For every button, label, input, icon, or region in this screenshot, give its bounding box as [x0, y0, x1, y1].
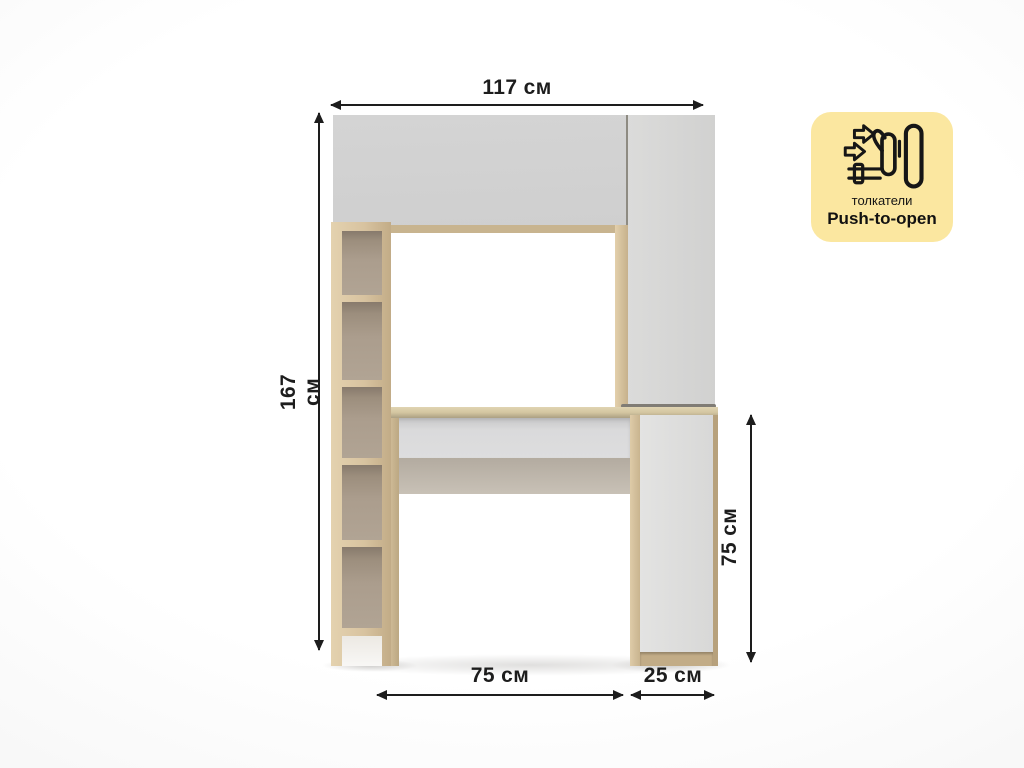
shelf-cell — [342, 547, 382, 628]
badge-label-ru: толкатели — [852, 194, 913, 208]
cabinet-underside-wood — [391, 225, 615, 233]
dimension-arrow-pedestal-width — [631, 694, 714, 696]
overhead-cabinet-door — [333, 115, 626, 225]
shelf-cell — [342, 231, 382, 295]
dimension-label-top-width: 117 см — [457, 76, 577, 100]
dimension-label-pedestal-width: 25 см — [613, 664, 733, 688]
desk-drawer-front — [389, 418, 630, 458]
right-wardrobe-front — [628, 115, 715, 405]
shelf-cell — [342, 302, 382, 380]
shelf-cell — [342, 387, 382, 458]
hand-palm-icon — [882, 134, 895, 174]
push-to-open-badge: толкатели Push-to-open — [811, 112, 953, 242]
product-dimension-image: 117 см 167 см 75 см 75 см 25 см толкател… — [0, 0, 1024, 768]
dimension-arrow-desk-width — [377, 694, 623, 696]
push-arrow-icon — [854, 126, 873, 143]
door-panel-icon — [906, 126, 922, 187]
wardrobe-side-panel-wood — [615, 225, 628, 408]
pedestal-side-wood — [630, 415, 640, 666]
dimension-label-desk-width: 75 см — [440, 664, 560, 688]
shelf-cell — [342, 465, 382, 540]
cuff-icon — [854, 164, 862, 182]
dimension-label-right-height: 75 см — [718, 507, 742, 567]
push-arrow-icon — [845, 143, 864, 160]
badge-label-en: Push-to-open — [827, 210, 937, 229]
pedestal-door — [640, 415, 713, 652]
open-shelving-column — [331, 222, 391, 666]
dimension-arrow-top-width — [331, 104, 703, 106]
desk-back-panel — [389, 458, 630, 494]
push-to-open-icon — [836, 123, 928, 191]
dimension-arrow-right-height — [750, 415, 752, 662]
dimension-label-left-height: 167 см — [277, 357, 325, 427]
column-plinth-gap — [342, 636, 382, 666]
